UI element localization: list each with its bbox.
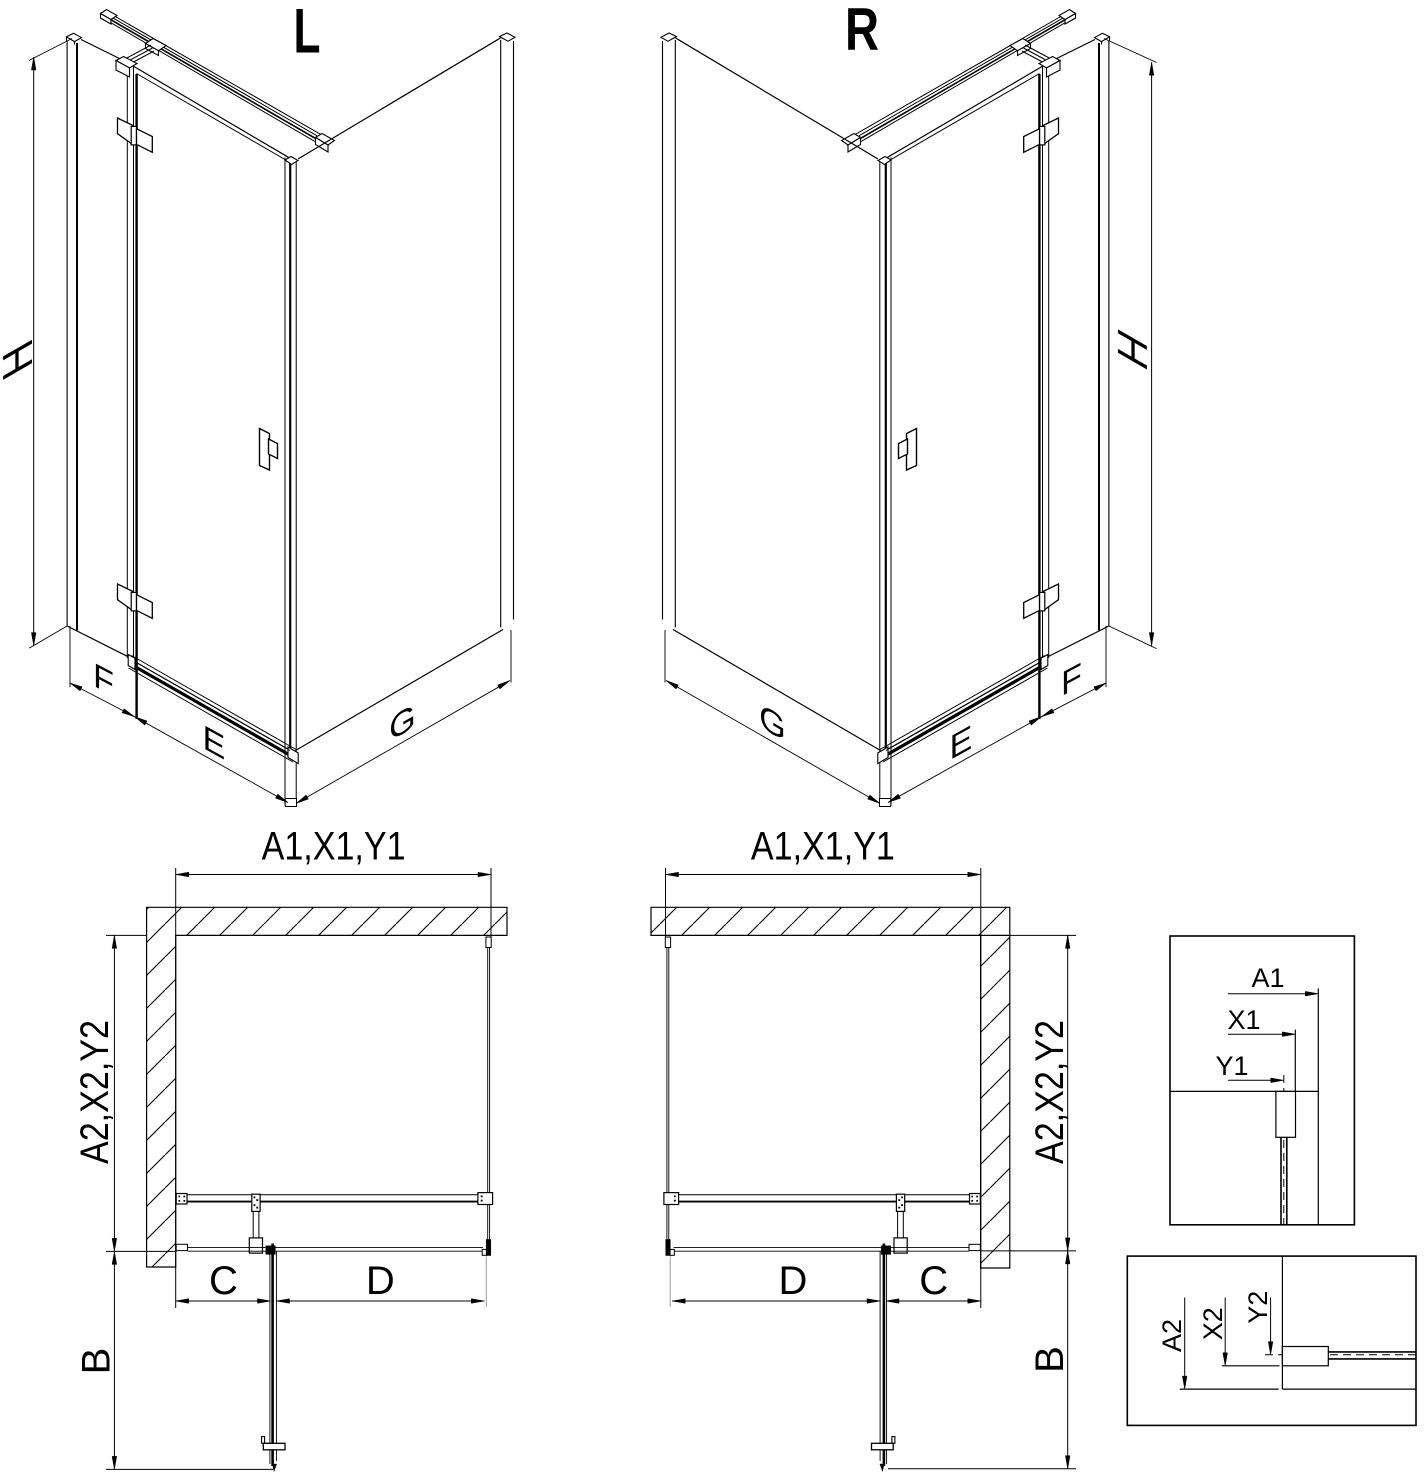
svg-text:L: L [294, 0, 321, 67]
svg-text:D: D [366, 1259, 395, 1303]
svg-text:C: C [209, 1259, 238, 1303]
svg-text:A1,X1,Y1: A1,X1,Y1 [262, 825, 406, 869]
svg-text:R: R [845, 0, 879, 63]
svg-text:A1: A1 [1251, 963, 1284, 993]
svg-text:A1,X1,Y1: A1,X1,Y1 [751, 825, 895, 869]
svg-text:X1: X1 [1227, 1005, 1260, 1035]
svg-text:A2,X2,Y2: A2,X2,Y2 [1028, 1020, 1072, 1164]
svg-text:B: B [1028, 1346, 1072, 1373]
svg-text:B: B [75, 1348, 119, 1375]
svg-text:Y1: Y1 [1215, 1051, 1248, 1081]
svg-text:A2: A2 [1157, 1319, 1187, 1352]
svg-text:C: C [919, 1259, 948, 1303]
svg-text:Y2: Y2 [1243, 1291, 1273, 1324]
svg-text:X2: X2 [1198, 1307, 1228, 1340]
svg-text:D: D [779, 1259, 808, 1303]
svg-text:A2,X2,Y2: A2,X2,Y2 [73, 1020, 117, 1164]
